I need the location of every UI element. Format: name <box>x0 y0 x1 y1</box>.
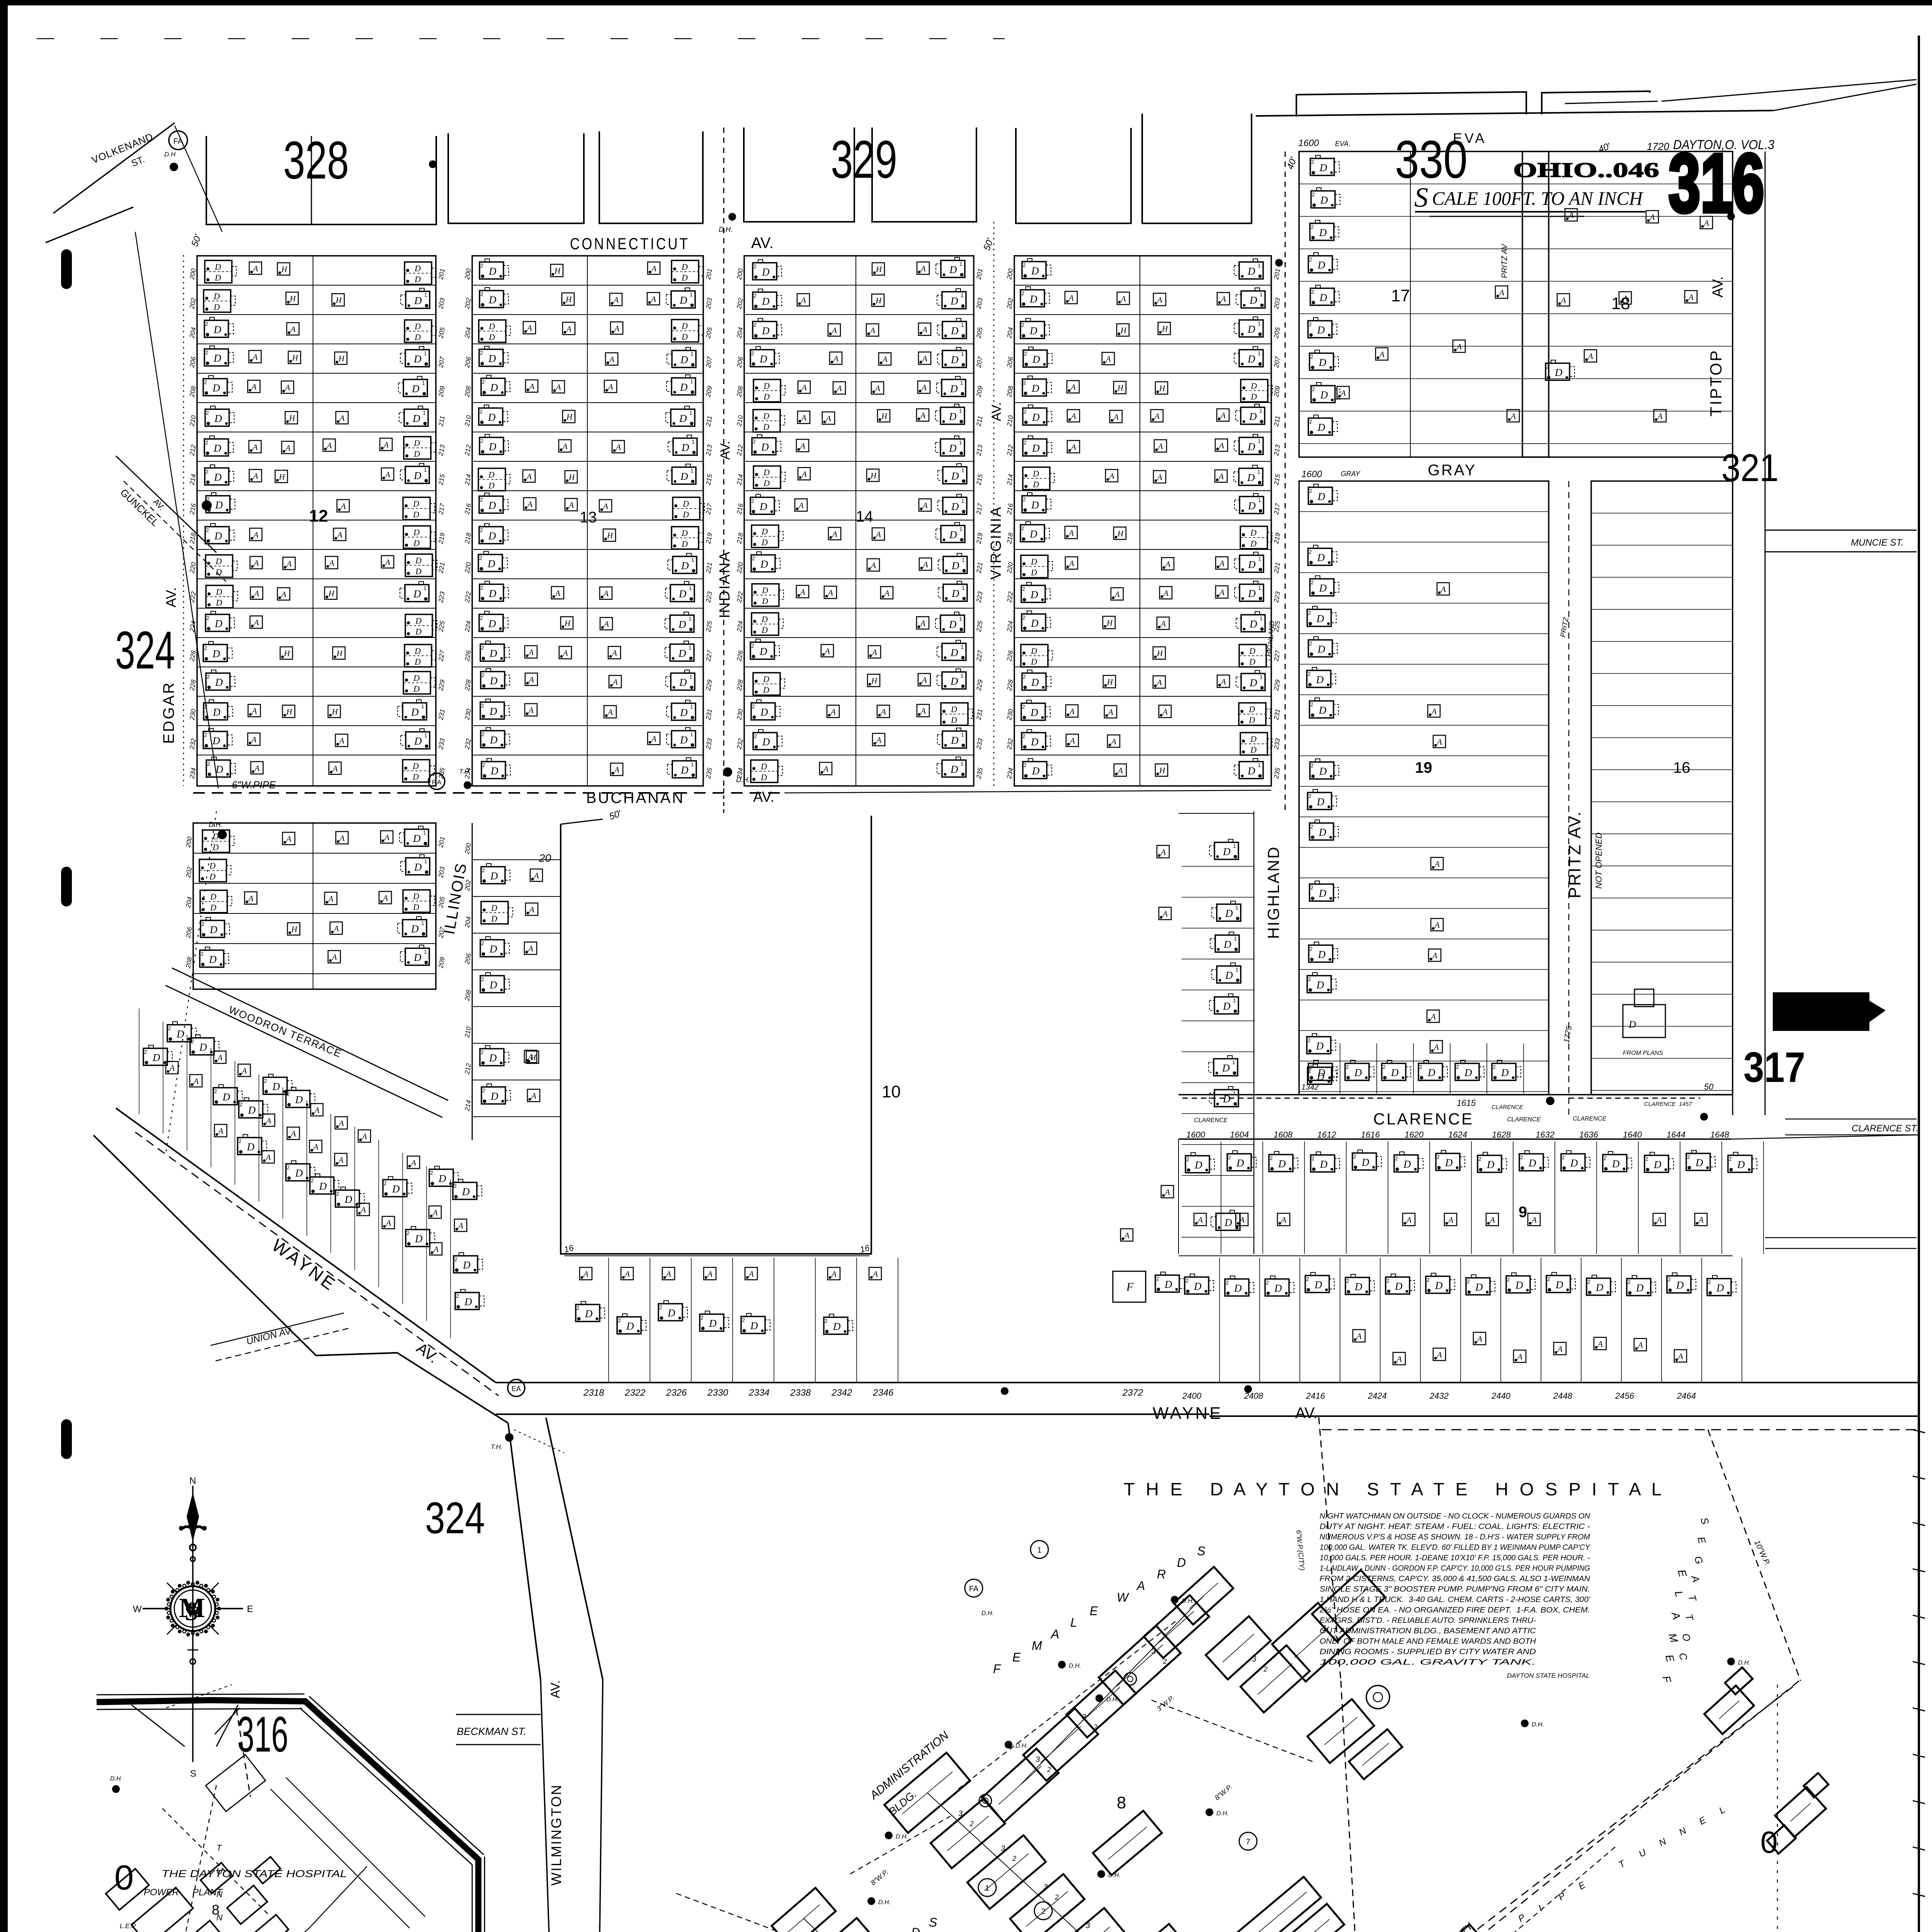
svg-text:AV.: AV. <box>1710 276 1726 298</box>
svg-text:324: 324 <box>115 621 175 680</box>
svg-text:&: & <box>186 1598 201 1618</box>
svg-text:D.H.: D.H. <box>1106 1696 1119 1703</box>
svg-text:1342: 1342 <box>1301 1083 1319 1092</box>
svg-text:2: 2 <box>969 1820 974 1828</box>
svg-text:D.H.: D.H. <box>1532 1721 1544 1728</box>
svg-text:ONLY OF BOTH MALE AND FEMALE W: ONLY OF BOTH MALE AND FEMALE WARDS AND B… <box>1320 1637 1536 1646</box>
svg-text:2322: 2322 <box>624 1388 645 1398</box>
svg-text:2334: 2334 <box>748 1388 769 1398</box>
svg-text:2: 2 <box>1054 1893 1059 1901</box>
svg-text:CLARENCE: CLARENCE <box>1507 1116 1541 1123</box>
svg-text:GRAY: GRAY <box>1341 470 1361 478</box>
svg-text:2318: 2318 <box>583 1388 604 1398</box>
svg-text:A: A <box>1050 1627 1059 1641</box>
svg-text:D.H.: D.H. <box>896 1833 908 1840</box>
svg-text:321: 321 <box>1721 446 1779 490</box>
svg-text:F.A: F.A <box>432 779 442 786</box>
svg-text:D.H.: D.H. <box>981 1610 994 1617</box>
svg-text:1636: 1636 <box>1579 1130 1599 1139</box>
svg-text:GRAY: GRAY <box>1428 462 1476 479</box>
svg-text:AV.: AV. <box>753 789 774 805</box>
svg-text:N: N <box>189 1476 196 1486</box>
svg-text:19: 19 <box>1415 759 1432 776</box>
svg-text:1624: 1624 <box>1448 1130 1467 1139</box>
svg-text:1600: 1600 <box>1298 138 1319 148</box>
svg-text:E: E <box>247 1604 253 1614</box>
svg-text:1648: 1648 <box>1710 1130 1730 1139</box>
svg-text:E: E <box>1090 1604 1098 1618</box>
svg-text:T: T <box>216 1843 222 1853</box>
svg-text:8: 8 <box>212 1902 219 1918</box>
svg-text:2372: 2372 <box>1122 1388 1143 1398</box>
svg-text:AV.: AV. <box>989 402 1004 421</box>
svg-text:EVA: EVA <box>1453 130 1486 146</box>
svg-text:2: 2 <box>1263 1665 1267 1673</box>
svg-text:A: A <box>1136 1579 1145 1593</box>
svg-text:F: F <box>993 1662 1002 1676</box>
svg-text:NIGHT WATCHMAN ON OUTSIDE - NO: NIGHT WATCHMAN ON OUTSIDE - NO CLOCK - N… <box>1320 1512 1590 1520</box>
svg-text:EVA.: EVA. <box>1335 140 1350 148</box>
svg-text:BUCHANAN: BUCHANAN <box>586 789 685 806</box>
svg-text:DUTY AT NIGHT. HEAT: STEAM - F: DUTY AT NIGHT. HEAT: STEAM - FUEL: COAL.… <box>1320 1522 1590 1531</box>
svg-text:D.H.: D.H. <box>209 821 223 828</box>
svg-text:1628: 1628 <box>1492 1130 1511 1139</box>
svg-text:T.H: T.H <box>459 768 469 775</box>
svg-text:1: 1 <box>1037 1546 1041 1554</box>
svg-text:AV.: AV. <box>718 441 733 460</box>
svg-text:POWER: POWER <box>144 1887 179 1898</box>
svg-text:D: D <box>911 1925 920 1932</box>
svg-text:1600: 1600 <box>1301 469 1322 480</box>
svg-text:2464: 2464 <box>1677 1391 1696 1401</box>
svg-text:S: S <box>1197 1544 1205 1558</box>
svg-text:100,000 GAL. WATER TK. ELEV'D.: 100,000 GAL. WATER TK. ELEV'D. 60' FILLE… <box>1320 1543 1591 1552</box>
svg-text:D.H.: D.H. <box>1108 1872 1121 1879</box>
svg-text:W: W <box>1117 1590 1129 1604</box>
svg-text:BECKMAN ST.: BECKMAN ST. <box>457 1726 527 1737</box>
svg-text:MUNCIE ST.: MUNCIE ST. <box>1851 537 1903 548</box>
svg-text:DAYTON,O. VOL.3: DAYTON,O. VOL.3 <box>1673 138 1774 152</box>
svg-text:F: F <box>1126 1281 1134 1293</box>
svg-text:L: L <box>1070 1616 1077 1629</box>
svg-text:CALE 100FT. TO AN INCH: CALE 100FT. TO AN INCH <box>1432 187 1644 209</box>
svg-text:D.H.: D.H. <box>1182 1598 1194 1604</box>
svg-text:13: 13 <box>580 509 597 526</box>
svg-text:3: 3 <box>1086 1922 1090 1930</box>
svg-text:10,000 GALS. PER HOUR. 1-DEANE: 10,000 GALS. PER HOUR. 1-DEANE 10'X10' F… <box>1320 1554 1590 1562</box>
svg-text:14: 14 <box>856 508 873 525</box>
svg-text:M: M <box>1032 1639 1042 1653</box>
svg-text:1 HAND H & L TRUCK. 3-40 GAL.: 1 HAND H & L TRUCK. 3-40 GAL. CHEM. CART… <box>1320 1595 1590 1604</box>
svg-text:2: 2 <box>1093 1723 1097 1731</box>
svg-text:2424: 2424 <box>1367 1391 1387 1401</box>
svg-text:D: D <box>1177 1556 1186 1570</box>
svg-text:S: S <box>190 1769 196 1779</box>
svg-text:PRITZ AV: PRITZ AV <box>1500 243 1509 278</box>
svg-text:12: 12 <box>309 507 328 526</box>
svg-text:16: 16 <box>1673 759 1690 776</box>
svg-text:2: 2 <box>1163 1658 1167 1665</box>
svg-text:2326: 2326 <box>666 1388 687 1398</box>
svg-text:D: D <box>1628 1019 1636 1030</box>
svg-text:S: S <box>1414 182 1428 213</box>
svg-text:1620: 1620 <box>1405 1130 1424 1139</box>
svg-text:CLARENCE: CLARENCE <box>1373 1110 1474 1128</box>
svg-text:1608: 1608 <box>1274 1130 1293 1139</box>
svg-text:NOT OPENED: NOT OPENED <box>1594 832 1604 889</box>
svg-text:20: 20 <box>539 852 551 864</box>
svg-text:T H E D A Y T O N S T A T: T H E D A Y T O N S T A T E H O S P I T … <box>1124 1479 1665 1499</box>
svg-text:0: 0 <box>1760 1825 1778 1859</box>
svg-text:1615: 1615 <box>1457 1098 1476 1108</box>
svg-text:2448: 2448 <box>1553 1391 1573 1401</box>
svg-text:3: 3 <box>1043 1883 1048 1891</box>
svg-text:18: 18 <box>1611 294 1630 313</box>
svg-text:NUMEROUS V.P'S & HOSE AS SHOWN: NUMEROUS V.P'S & HOSE AS SHOWN. 18 - D.H… <box>1320 1533 1590 1541</box>
svg-text:328: 328 <box>283 131 349 190</box>
svg-text:8: 8 <box>1117 1793 1126 1812</box>
svg-text:W: W <box>133 1604 142 1614</box>
svg-text:PRITZ AV.: PRITZ AV. <box>1565 810 1584 898</box>
svg-text:CLARENCE: CLARENCE <box>1194 1117 1228 1124</box>
svg-text:CONNECTICUT: CONNECTICUT <box>570 235 690 253</box>
svg-text:50: 50 <box>1704 1082 1714 1092</box>
svg-text:1632: 1632 <box>1536 1130 1554 1139</box>
svg-text:1640: 1640 <box>1623 1130 1642 1139</box>
svg-text:2: 2 <box>1333 1634 1337 1642</box>
svg-text:2346: 2346 <box>872 1388 894 1398</box>
svg-text:AV.: AV. <box>548 1680 562 1698</box>
svg-text:10: 10 <box>882 1082 901 1101</box>
svg-text:DAYTON STATE HOSPITAL: DAYTON STATE HOSPITAL <box>1507 1672 1590 1679</box>
svg-text:R: R <box>1157 1567 1166 1581</box>
svg-text:2: 2 <box>1041 1907 1045 1916</box>
svg-text:1604: 1604 <box>1230 1130 1249 1139</box>
svg-text:3: 3 <box>1001 1844 1005 1853</box>
svg-text:CLARENCE: CLARENCE <box>1492 1104 1524 1111</box>
svg-text:TIPTOP: TIPTOP <box>1707 349 1725 417</box>
svg-text:S: S <box>929 1915 937 1929</box>
svg-text:D.H.: D.H. <box>1069 1663 1081 1669</box>
svg-text:AV.: AV. <box>751 235 774 252</box>
svg-text:2440: 2440 <box>1491 1391 1511 1401</box>
svg-text:2400: 2400 <box>1182 1391 1202 1401</box>
svg-text:2342: 2342 <box>831 1388 852 1398</box>
svg-text:1612: 1612 <box>1317 1130 1336 1139</box>
svg-text:CLARENCE ST.: CLARENCE ST. <box>1852 1123 1918 1134</box>
svg-text:3: 3 <box>1151 1647 1156 1656</box>
svg-text:L.E.P: L.E.P <box>120 1922 136 1930</box>
svg-text:CLARENCE: CLARENCE <box>1573 1116 1606 1122</box>
svg-text:9: 9 <box>1519 1204 1527 1221</box>
svg-text:2338: 2338 <box>790 1388 811 1398</box>
svg-text:THE DAYTON STATE HOSPITAL: THE DAYTON STATE HOSPITAL <box>162 1868 347 1879</box>
svg-text:2416: 2416 <box>1306 1391 1325 1401</box>
svg-text:D.H.: D.H. <box>1738 1660 1750 1666</box>
svg-text:VIRGINIA: VIRGINIA <box>988 506 1004 580</box>
svg-text:T.H.: T.H. <box>491 1443 503 1451</box>
svg-text:DINING ROOMS - SUPPLIED BY CIT: DINING ROOMS - SUPPLIED BY CITY WATER AN… <box>1320 1648 1536 1656</box>
svg-text:3: 3 <box>1252 1655 1256 1663</box>
svg-text:AV.: AV. <box>1295 1405 1318 1422</box>
svg-text:D.H.: D.H. <box>878 1899 891 1906</box>
svg-text:D.H.: D.H. <box>1216 1810 1229 1817</box>
svg-text:HIGHLAND: HIGHLAND <box>1264 846 1282 939</box>
svg-text:3: 3 <box>1036 1755 1040 1764</box>
svg-text:PLANT: PLANT <box>192 1887 223 1898</box>
svg-text:316: 316 <box>237 1706 288 1762</box>
svg-text:3: 3 <box>958 1810 963 1818</box>
svg-text:2456: 2456 <box>1615 1391 1634 1401</box>
svg-text:317: 317 <box>1743 1044 1805 1091</box>
svg-text:D.H.: D.H. <box>736 776 750 784</box>
svg-text:1720: 1720 <box>1647 141 1669 152</box>
svg-text:CLARENCE 1457: CLARENCE 1457 <box>1644 1101 1692 1107</box>
svg-text:3: 3 <box>1321 1624 1326 1633</box>
svg-text:INDIANA: INDIANA <box>717 551 733 618</box>
svg-text:1: 1 <box>985 1884 989 1893</box>
svg-text:OHIO..046: OHIO..046 <box>1513 158 1659 182</box>
svg-text:SINGLE STAGE 3" BOOSTER PUMP.: SINGLE STAGE 3" BOOSTER PUMP. PUMP'NG FR… <box>1320 1585 1590 1594</box>
svg-text:AV.: AV. <box>163 587 179 607</box>
svg-text:FROM 2-CISTERNS, CAP'CY. 35,00: FROM 2-CISTERNS, CAP'CY. 35,000 & 41,500… <box>1320 1575 1590 1583</box>
svg-text:6″W.PIPE: 6″W.PIPE <box>232 779 276 791</box>
svg-text:D.H: D.H <box>110 1776 121 1782</box>
svg-text:2: 2 <box>1047 1766 1051 1774</box>
svg-text:E: E <box>1012 1650 1021 1664</box>
svg-text:EA: EA <box>512 1385 521 1393</box>
svg-text:EDGAR: EDGAR <box>160 681 177 744</box>
svg-text:329: 329 <box>831 130 897 189</box>
svg-text:2½" HOSE ON EA. - NO ORGANIZED: 2½" HOSE ON EA. - NO ORGANIZED FIRE DEPT… <box>1319 1606 1590 1614</box>
svg-text:17: 17 <box>1391 286 1410 305</box>
svg-text:324: 324 <box>425 1493 485 1543</box>
svg-text:100,000 GAL. GRAVITY TANK.: 100,000 GAL. GRAVITY TANK. <box>1320 1658 1536 1667</box>
svg-text:D.H.: D.H. <box>1015 1743 1028 1749</box>
svg-text:2432: 2432 <box>1429 1391 1449 1401</box>
svg-text:1616: 1616 <box>1361 1130 1380 1139</box>
svg-text:FA: FA <box>969 1585 979 1593</box>
svg-text:EXTGRS. DIST'D. - RELIABLE AUT: EXTGRS. DIST'D. - RELIABLE AUTO. SPRINKL… <box>1320 1616 1536 1625</box>
svg-text:D.H: D.H <box>164 151 176 158</box>
svg-text:FROM PLANS: FROM PLANS <box>1623 1050 1663 1056</box>
svg-text:1644: 1644 <box>1667 1130 1685 1139</box>
svg-text:D.H.: D.H. <box>719 226 733 233</box>
svg-text:2: 2 <box>1012 1855 1016 1862</box>
svg-text:3: 3 <box>1082 1713 1086 1721</box>
svg-text:WILMINGTON: WILMINGTON <box>548 1784 564 1886</box>
svg-text:1600: 1600 <box>1186 1130 1206 1139</box>
svg-text:WAYNE: WAYNE <box>1153 1404 1223 1423</box>
svg-text:7: 7 <box>1246 1838 1250 1846</box>
svg-text:2330: 2330 <box>707 1388 728 1398</box>
